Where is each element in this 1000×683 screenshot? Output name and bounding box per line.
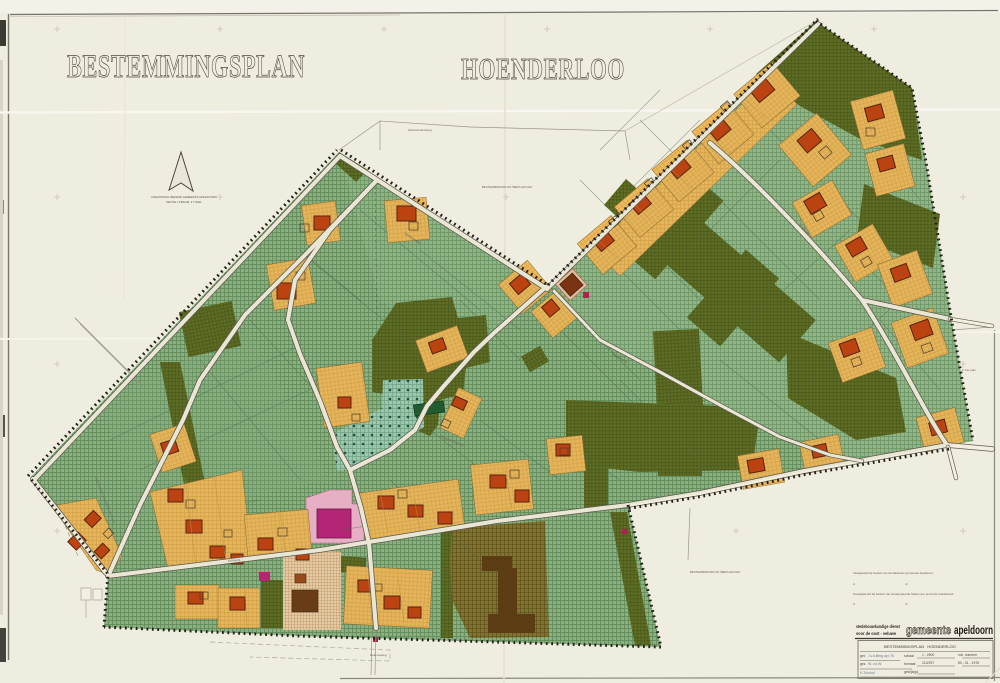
svg-text:H.Tuinhof: H.Tuinhof (860, 671, 875, 675)
svg-text:schaal: schaal (904, 654, 914, 658)
svg-text:SECTIE L FRAGM. 4 T.GED.: SECTIE L FRAGM. 4 T.GED. (166, 200, 202, 204)
svg-text:formaat: formaat (904, 662, 916, 666)
svg-text:BESTEMMINGSPLAN “BERG EN DAL”: BESTEMMINGSPLAN “BERG EN DAL” (690, 570, 741, 574)
svg-text:1 : 2500: 1 : 2500 (922, 653, 934, 657)
svg-text:get.: get. (860, 654, 866, 658)
svg-text:d.: d. (853, 602, 856, 606)
svg-text:BESTEMMINGSPLAN HOENDERLOO: BESTEMMINGSPLAN HOENDERLOO (884, 644, 956, 649)
svg-text:gewijzigd: gewijzigd (904, 670, 918, 674)
svg-text:apeldoorn: apeldoorn (954, 625, 993, 637)
svg-text:rub. nummer: rub. nummer (958, 653, 978, 657)
svg-text:W. v.d.W.: W. v.d.W. (868, 662, 882, 666)
svg-text:stedebouwkundige dienst: stedebouwkundige dienst (856, 624, 900, 630)
svg-text:gemeente: gemeente (906, 625, 951, 637)
svg-text:BESTEMMINGSPLAN: BESTEMMINGSPLAN (67, 49, 305, 85)
svg-text:Goedgekeurd bij besluit van Ge: Goedgekeurd bij besluit van Gedeputeerde… (853, 592, 954, 596)
svg-text:voor de oost - veluwe: voor de oost - veluwe (856, 631, 896, 637)
svg-text:nr.: nr. (905, 602, 909, 606)
svg-text:Delenseweg: Delenseweg (370, 653, 387, 657)
svg-text:nr.: nr. (905, 582, 909, 586)
svg-text:J.v.d.Berg apr.'76: J.v.d.Berg apr.'76 (868, 654, 894, 658)
svg-text:Vastgesteld bij besluit van de: Vastgesteld bij besluit van de Raad der … (853, 571, 934, 575)
svg-text:80 - 01 - 1976: 80 - 01 - 1976 (958, 661, 979, 665)
svg-text:210/297: 210/297 (922, 661, 934, 665)
svg-text:HOENDERLOO: HOENDERLOO (461, 51, 625, 86)
svg-text:Alverschotensweg: Alverschotensweg (408, 128, 432, 132)
svg-text:in het plan: in het plan (962, 368, 976, 372)
svg-text:BESTEMMINGSPLAN “BERG EN DAL”: BESTEMMINGSPLAN “BERG EN DAL” (482, 185, 533, 189)
svg-text:gez.: gez. (860, 662, 866, 666)
svg-text:d.: d. (853, 582, 856, 586)
svg-text:KADASTRAAL BEKEND GEMEENTE APE: KADASTRAAL BEKEND GEMEENTE APELDOORN (151, 195, 216, 199)
